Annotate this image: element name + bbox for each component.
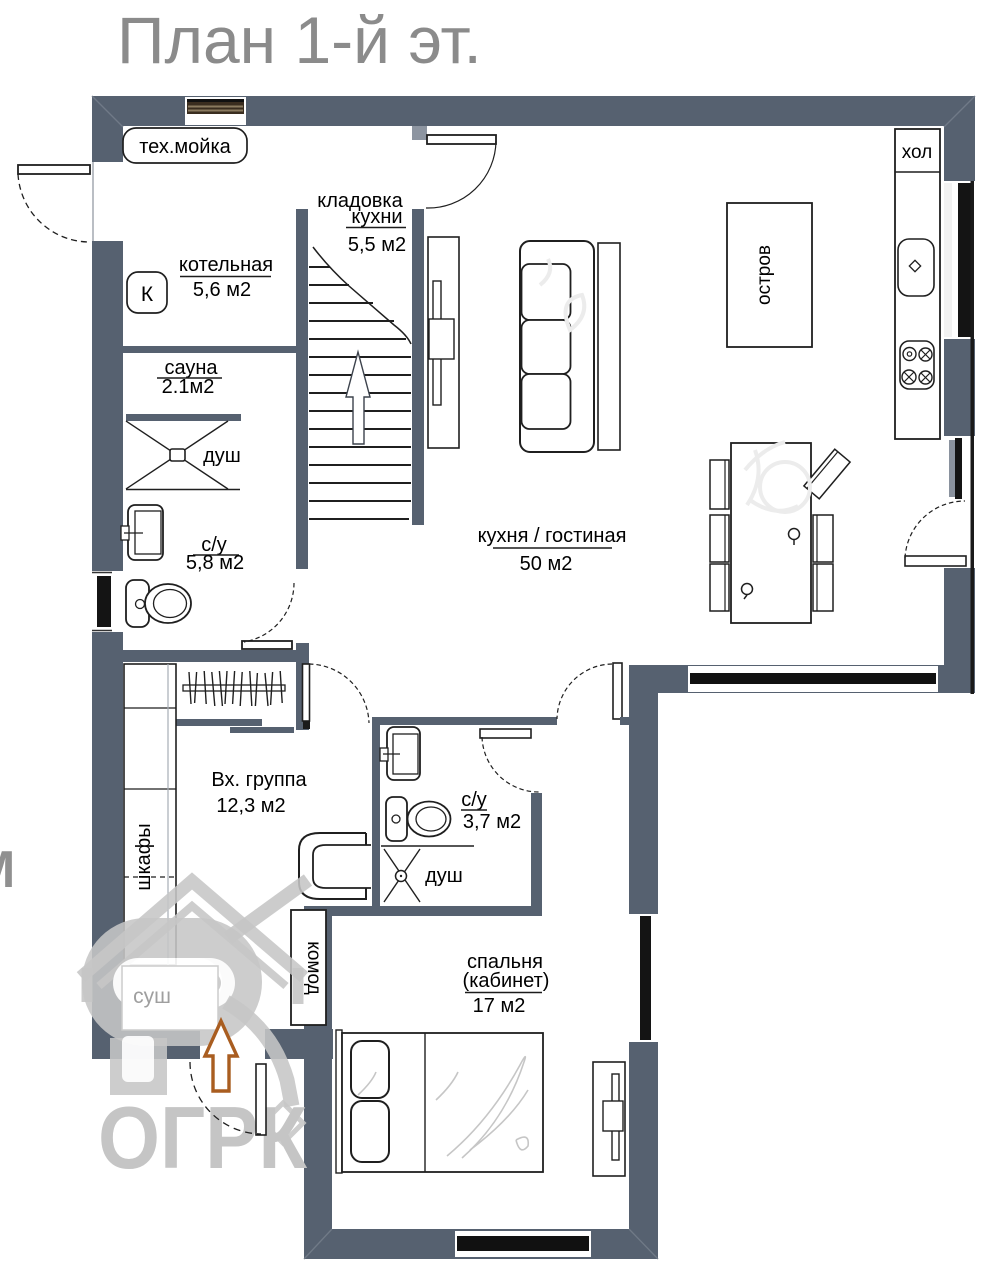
svg-text:Вх. группа: Вх. группа [211, 769, 307, 791]
svg-text:12,3 м2: 12,3 м2 [216, 795, 285, 817]
svg-text:5,5 м2: 5,5 м2 [348, 234, 406, 256]
svg-text:(кабинет): (кабинет) [463, 970, 550, 992]
svg-text:М: М [0, 841, 15, 899]
svg-text:К: К [141, 283, 154, 306]
svg-text:3,7 м2: 3,7 м2 [463, 811, 521, 833]
svg-text:ОГРК: ОГРК [98, 1088, 307, 1187]
svg-text:душ: душ [203, 445, 241, 467]
svg-text:с/у: с/у [461, 789, 487, 811]
svg-text:остров: остров [754, 245, 775, 305]
svg-text:суш: суш [133, 985, 171, 1008]
svg-text:кухня / гостиная: кухня / гостиная [478, 525, 627, 547]
svg-text:5,8 м2: 5,8 м2 [186, 552, 244, 574]
svg-text:шкафы: шкафы [133, 823, 155, 890]
svg-text:План 1-й эт.: План 1-й эт. [117, 3, 482, 77]
svg-text:комод: комод [303, 941, 324, 994]
svg-text:5,6 м2: 5,6 м2 [193, 279, 251, 301]
svg-text:кухни: кухни [351, 206, 402, 228]
svg-text:тех.мойка: тех.мойка [139, 136, 231, 158]
svg-text:17 м2: 17 м2 [473, 995, 526, 1017]
svg-text:2.1м2: 2.1м2 [162, 376, 215, 398]
svg-text:хол: хол [902, 142, 933, 163]
svg-text:душ: душ [425, 865, 463, 887]
svg-text:котельная: котельная [179, 254, 273, 276]
svg-text:50 м2: 50 м2 [520, 553, 573, 575]
